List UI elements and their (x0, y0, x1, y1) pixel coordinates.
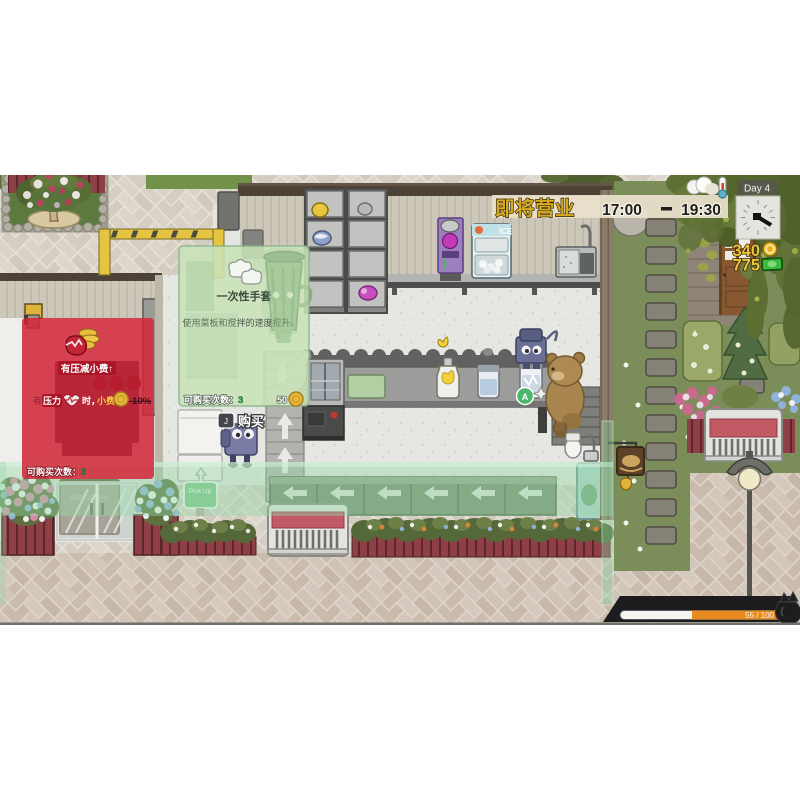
svg-text:可购买次数：: 可购买次数： (184, 394, 238, 405)
svg-text:有压减小费↑: 有压减小费↑ (61, 363, 113, 375)
svg-text:小费: 小费 (96, 395, 115, 406)
svg-text:50: 50 (277, 395, 287, 405)
svg-text:17:00: 17:00 (602, 202, 642, 219)
svg-text:Day 4: Day 4 (744, 184, 771, 195)
svg-text:-10%: -10% (129, 396, 152, 407)
svg-text:即将营业: 即将营业 (495, 197, 575, 220)
svg-text:A: A (522, 392, 529, 402)
svg-text:J: J (224, 417, 228, 426)
svg-text:可购买次数：: 可购买次数： (27, 466, 81, 477)
svg-text:一次性手套: 一次性手套 (217, 289, 273, 303)
svg-text:有: 有 (33, 395, 42, 406)
svg-text:3: 3 (81, 467, 86, 478)
svg-text:ICE: ICE (499, 227, 513, 236)
svg-text:压力: 压力 (43, 395, 61, 406)
svg-text:3: 3 (238, 395, 243, 406)
svg-text:775: 775 (732, 257, 760, 275)
svg-text:19:30: 19:30 (681, 202, 721, 219)
svg-text:55 / 100: 55 / 100 (745, 611, 774, 620)
svg-text:购买: 购买 (238, 414, 264, 429)
